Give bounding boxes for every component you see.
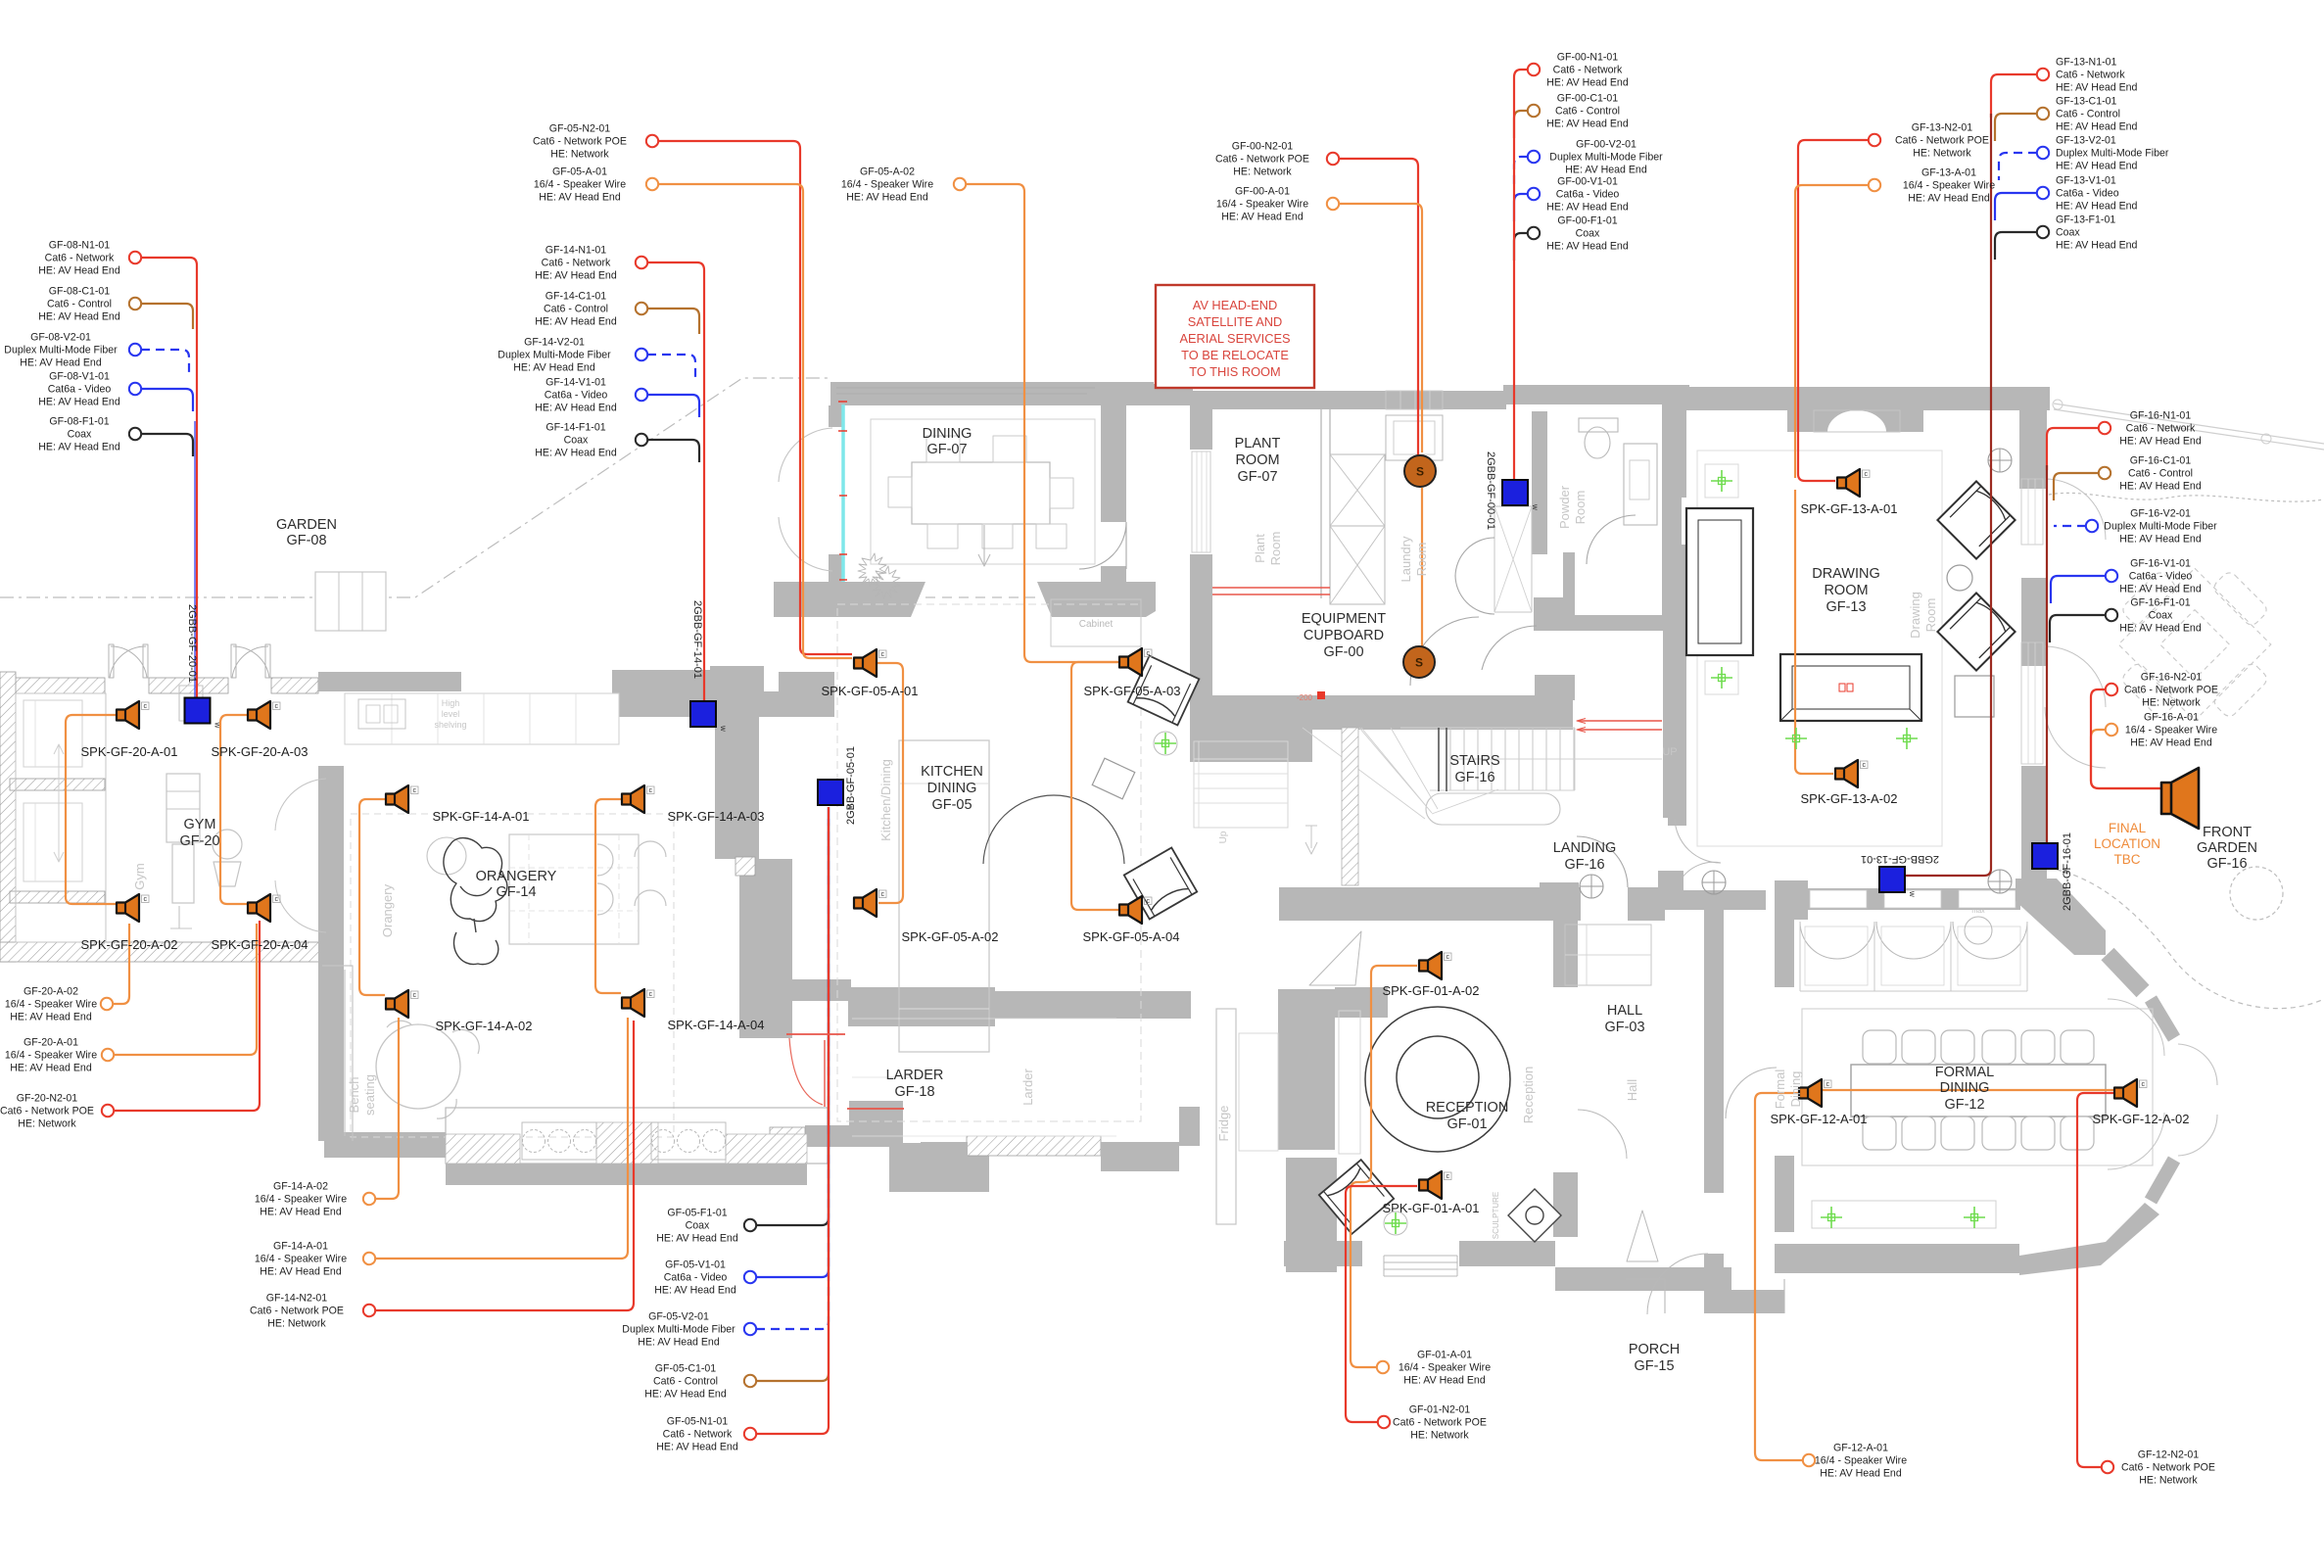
- svg-text:GF-16-V2-01: GF-16-V2-01: [2130, 507, 2191, 519]
- svg-text:SPK-GF-14-A-01: SPK-GF-14-A-01: [433, 809, 530, 824]
- svg-text:Coax: Coax: [564, 435, 589, 447]
- svg-text:GF-05-A-02: GF-05-A-02: [860, 166, 915, 177]
- svg-text:Cat6 - Network POE: Cat6 - Network POE: [0, 1106, 94, 1117]
- svg-text:PORCH: PORCH: [1629, 1342, 1680, 1357]
- svg-text:GF-14-A-02: GF-14-A-02: [273, 1180, 328, 1192]
- svg-text:Duplex Multi-Mode Fiber: Duplex Multi-Mode Fiber: [2056, 148, 2169, 160]
- svg-text:UP: UP: [1662, 746, 1677, 758]
- svg-text:Coax: Coax: [686, 1220, 710, 1232]
- svg-text:GF-14-C1-01: GF-14-C1-01: [545, 290, 607, 302]
- svg-text:GF-01-N2-01: GF-01-N2-01: [1409, 1403, 1471, 1415]
- svg-text:Plant: Plant: [1253, 534, 1267, 563]
- svg-text:Gym: Gym: [132, 863, 147, 889]
- svg-text:Duplex Multi-Mode Fiber: Duplex Multi-Mode Fiber: [498, 350, 611, 361]
- svg-text:HE: AV Head End: HE: AV Head End: [10, 1012, 92, 1023]
- svg-text:HE: AV Head End: HE: AV Head End: [2119, 481, 2202, 493]
- svg-text:GARDEN: GARDEN: [2197, 840, 2257, 856]
- svg-text:GF-14-N1-01: GF-14-N1-01: [545, 244, 607, 256]
- svg-text:GF-00: GF-00: [1323, 644, 1363, 660]
- svg-text:SATELLITE AND: SATELLITE AND: [1188, 314, 1282, 329]
- svg-text:Drawing: Drawing: [1908, 592, 1922, 639]
- svg-text:GF-01-A-01: GF-01-A-01: [1417, 1349, 1472, 1360]
- svg-text:SPK-GF-20-A-03: SPK-GF-20-A-03: [212, 744, 308, 759]
- svg-text:GF-08-V1-01: GF-08-V1-01: [49, 370, 110, 382]
- svg-text:SPK-GF-12-A-02: SPK-GF-12-A-02: [2093, 1112, 2190, 1126]
- svg-text:c: c: [413, 787, 417, 794]
- svg-text:GF-15: GF-15: [1634, 1358, 1674, 1374]
- svg-text:HE: Network: HE: Network: [1913, 148, 1971, 160]
- svg-text:DINING: DINING: [923, 426, 972, 442]
- svg-text:GF-14-N2-01: GF-14-N2-01: [266, 1292, 328, 1304]
- svg-text:HE: AV Head End: HE: AV Head End: [1908, 193, 1990, 205]
- svg-text:Cat6 - Network POE: Cat6 - Network POE: [533, 136, 627, 148]
- svg-text:Cat6a - Video: Cat6a - Video: [48, 384, 112, 396]
- svg-text:Formal: Formal: [1773, 1069, 1787, 1110]
- svg-text:LANDING: LANDING: [1553, 840, 1616, 856]
- svg-text:HE: AV Head End: HE: AV Head End: [656, 1233, 738, 1245]
- svg-text:Powder: Powder: [1557, 485, 1572, 529]
- svg-text:c: c: [144, 896, 148, 903]
- svg-text:GF-07: GF-07: [926, 442, 967, 457]
- svg-text:GF-05-A-01: GF-05-A-01: [552, 166, 607, 177]
- svg-text:GF-13-V2-01: GF-13-V2-01: [2056, 134, 2116, 146]
- svg-text:GF-16: GF-16: [1564, 857, 1604, 873]
- svg-text:Coax: Coax: [68, 429, 92, 441]
- svg-text:GF-05-F1-01: GF-05-F1-01: [667, 1207, 727, 1218]
- svg-text:Orangery: Orangery: [380, 883, 395, 937]
- svg-text:HE: AV Head End: HE: AV Head End: [2119, 436, 2202, 448]
- svg-text:HE: AV Head End: HE: AV Head End: [1546, 77, 1629, 89]
- svg-text:GF-13-N1-01: GF-13-N1-01: [2056, 56, 2117, 68]
- svg-text:seating: seating: [362, 1074, 377, 1116]
- svg-text:GF-00-N2-01: GF-00-N2-01: [1232, 140, 1294, 152]
- svg-text:HE: Network: HE: Network: [550, 149, 609, 161]
- svg-text:Cat6a - Video: Cat6a - Video: [545, 390, 608, 402]
- svg-text:2GBB-GF-16-01: 2GBB-GF-16-01: [2062, 832, 2073, 911]
- svg-text:GF-12-N2-01: GF-12-N2-01: [2138, 1449, 2200, 1460]
- svg-text:HE: AV Head End: HE: AV Head End: [654, 1285, 736, 1297]
- svg-text:Bench: Bench: [347, 1077, 361, 1114]
- svg-text:Cabinet: Cabinet: [1079, 619, 1114, 630]
- svg-text:HE: AV Head End: HE: AV Head End: [2130, 737, 2212, 749]
- svg-text:SPK-GF-05-A-04: SPK-GF-05-A-04: [1083, 929, 1180, 944]
- svg-text:Cat6 - Control: Cat6 - Control: [47, 299, 112, 310]
- svg-text:c: c: [881, 651, 885, 658]
- svg-text:c: c: [144, 703, 148, 710]
- svg-text:HE: AV Head End: HE: AV Head End: [20, 357, 102, 369]
- svg-text:Dining: Dining: [1788, 1071, 1803, 1108]
- svg-text:16/4 - Speaker Wire: 16/4 - Speaker Wire: [5, 999, 97, 1011]
- svg-text:HE: AV Head End: HE: AV Head End: [1546, 119, 1629, 130]
- svg-text:Cat6a - Video: Cat6a - Video: [2129, 571, 2193, 583]
- svg-text:Cat6 - Control: Cat6 - Control: [1555, 106, 1620, 118]
- svg-text:w: w: [1908, 890, 1917, 897]
- svg-text:GF-13-F1-01: GF-13-F1-01: [2056, 214, 2115, 225]
- svg-text:HE: AV Head End: HE: AV Head End: [1820, 1468, 1902, 1480]
- svg-text:EQUIPMENT: EQUIPMENT: [1302, 611, 1386, 627]
- svg-text:LARDER: LARDER: [886, 1068, 944, 1083]
- svg-text:-200: -200: [1297, 693, 1313, 702]
- svg-text:GF-05-V1-01: GF-05-V1-01: [665, 1259, 726, 1270]
- svg-text:HE: AV Head End: HE: AV Head End: [2119, 623, 2202, 635]
- svg-text:SPK-GF-20-A-04: SPK-GF-20-A-04: [212, 937, 308, 952]
- svg-text:GF-12: GF-12: [1944, 1097, 1984, 1113]
- svg-text:CUPBOARD: CUPBOARD: [1304, 628, 1384, 643]
- svg-text:HE: AV Head End: HE: AV Head End: [644, 1389, 727, 1401]
- svg-text:w: w: [719, 725, 728, 732]
- svg-text:HE: AV Head End: HE: AV Head End: [260, 1207, 342, 1218]
- svg-text:HE: AV Head End: HE: AV Head End: [535, 448, 617, 459]
- svg-text:GF-16-N1-01: GF-16-N1-01: [2130, 409, 2192, 421]
- svg-text:Cat6 - Network POE: Cat6 - Network POE: [1393, 1417, 1487, 1429]
- svg-text:Cat6 - Network: Cat6 - Network: [1553, 65, 1623, 76]
- svg-text:HE: AV Head End: HE: AV Head End: [656, 1442, 738, 1453]
- svg-text:GF-14-V1-01: GF-14-V1-01: [545, 376, 606, 388]
- svg-text:RECEPTION: RECEPTION: [1426, 1100, 1509, 1116]
- svg-text:GF-08-V2-01: GF-08-V2-01: [30, 331, 91, 343]
- svg-text:SPK-GF-14-A-02: SPK-GF-14-A-02: [436, 1019, 533, 1033]
- svg-text:GF-20-A-01: GF-20-A-01: [24, 1036, 78, 1048]
- svg-text:GF-05-N1-01: GF-05-N1-01: [667, 1415, 729, 1427]
- svg-text:ROOM: ROOM: [1235, 452, 1279, 468]
- svg-text:DINING: DINING: [1940, 1080, 1990, 1096]
- svg-text:Reception: Reception: [1521, 1067, 1536, 1124]
- svg-text:HE: AV Head End: HE: AV Head End: [535, 270, 617, 282]
- svg-text:GF-16-C1-01: GF-16-C1-01: [2130, 454, 2192, 466]
- svg-text:STAIRS: STAIRS: [1449, 753, 1499, 769]
- svg-text:GF-14: GF-14: [496, 884, 536, 900]
- svg-text:S: S: [1416, 465, 1424, 479]
- svg-text:16/4 - Speaker Wire: 16/4 - Speaker Wire: [841, 179, 933, 191]
- svg-text:GF-16-F1-01: GF-16-F1-01: [2130, 596, 2190, 608]
- svg-text:GF-14-F1-01: GF-14-F1-01: [545, 421, 605, 433]
- svg-text:Coax: Coax: [1576, 228, 1600, 240]
- svg-text:2GBB-GF-00-01: 2GBB-GF-00-01: [1485, 451, 1496, 530]
- svg-text:Coax: Coax: [2149, 610, 2173, 622]
- svg-text:SPK-GF-20-A-02: SPK-GF-20-A-02: [81, 937, 178, 952]
- svg-text:TO THIS ROOM: TO THIS ROOM: [1189, 364, 1280, 379]
- svg-text:SPK-GF-05-A-01: SPK-GF-05-A-01: [822, 684, 919, 698]
- svg-text:Cat6 - Network POE: Cat6 - Network POE: [250, 1306, 344, 1317]
- svg-text:c: c: [649, 787, 653, 794]
- svg-text:HE: AV Head End: HE: AV Head End: [1565, 165, 1647, 176]
- svg-text:16/4 - Speaker Wire: 16/4 - Speaker Wire: [534, 179, 626, 191]
- svg-text:Cat6 - Control: Cat6 - Control: [653, 1376, 718, 1388]
- svg-text:HALL: HALL: [1607, 1003, 1642, 1019]
- svg-text:HE: AV Head End: HE: AV Head End: [638, 1337, 720, 1349]
- svg-text:shelving: shelving: [434, 720, 466, 730]
- svg-text:GF-20: GF-20: [179, 833, 219, 849]
- svg-text:GF-05-N2-01: GF-05-N2-01: [549, 122, 611, 134]
- svg-text:S: S: [1415, 656, 1423, 670]
- svg-text:Cat6 - Network POE: Cat6 - Network POE: [2124, 685, 2218, 696]
- svg-text:Kitchen/Dining: Kitchen/Dining: [878, 759, 893, 841]
- svg-text:High: High: [442, 698, 460, 708]
- svg-text:2GBB-GF-05-01: 2GBB-GF-05-01: [845, 746, 857, 825]
- svg-text:SPK-GF-14-A-04: SPK-GF-14-A-04: [668, 1018, 765, 1032]
- svg-text:2GBB-GF-13-01: 2GBB-GF-13-01: [1861, 853, 1939, 865]
- svg-text:FINAL: FINAL: [2109, 821, 2147, 835]
- svg-text:Cat6 - Network: Cat6 - Network: [2126, 423, 2196, 435]
- svg-text:SPK-GF-12-A-01: SPK-GF-12-A-01: [1771, 1112, 1868, 1126]
- svg-text:GF-16: GF-16: [2206, 856, 2247, 872]
- svg-text:Cat6 - Control: Cat6 - Control: [2056, 109, 2120, 120]
- svg-text:Cat6 - Network: Cat6 - Network: [542, 258, 611, 269]
- svg-text:GF-13-C1-01: GF-13-C1-01: [2056, 95, 2117, 107]
- svg-text:HE: AV Head End: HE: AV Head End: [1546, 202, 1629, 214]
- svg-text:Fridge: Fridge: [1216, 1106, 1231, 1142]
- svg-text:HE: Network: HE: Network: [18, 1118, 76, 1130]
- svg-text:GF-05-C1-01: GF-05-C1-01: [655, 1362, 717, 1374]
- svg-text:16/4 - Speaker Wire: 16/4 - Speaker Wire: [255, 1254, 347, 1265]
- svg-text:Duplex Multi-Mode Fiber: Duplex Multi-Mode Fiber: [1549, 152, 1663, 164]
- svg-text:HE: AV Head End: HE: AV Head End: [2119, 584, 2202, 595]
- svg-text:16/4 - Speaker Wire: 16/4 - Speaker Wire: [1903, 180, 1995, 192]
- svg-text:DRAWING: DRAWING: [1812, 566, 1880, 582]
- svg-text:c: c: [413, 992, 417, 999]
- svg-text:GF-03: GF-03: [1604, 1020, 1644, 1035]
- svg-text:HE: AV Head End: HE: AV Head End: [38, 442, 120, 453]
- svg-text:HE: AV Head End: HE: AV Head End: [1221, 212, 1304, 223]
- svg-text:GF-05-V2-01: GF-05-V2-01: [648, 1310, 709, 1322]
- svg-text:GARDEN: GARDEN: [276, 517, 337, 533]
- svg-text:GF-08-F1-01: GF-08-F1-01: [49, 415, 109, 427]
- svg-text:GF-00-N1-01: GF-00-N1-01: [1557, 51, 1619, 63]
- svg-text:GF-14-A-01: GF-14-A-01: [273, 1240, 328, 1252]
- svg-text:level: level: [442, 709, 460, 719]
- svg-text:FORMAL: FORMAL: [1935, 1065, 1994, 1080]
- svg-text:FRONT: FRONT: [2203, 825, 2252, 840]
- svg-text:GF-20-A-02: GF-20-A-02: [24, 985, 78, 997]
- svg-text:c: c: [1863, 762, 1867, 769]
- svg-text:GF-18: GF-18: [894, 1084, 934, 1100]
- svg-text:Laundry: Laundry: [1399, 536, 1413, 582]
- svg-text:Duplex Multi-Mode Fiber: Duplex Multi-Mode Fiber: [622, 1324, 735, 1336]
- svg-text:c: c: [1147, 650, 1151, 657]
- svg-text:c: c: [275, 703, 279, 710]
- svg-text:16/4 - Speaker Wire: 16/4 - Speaker Wire: [255, 1194, 347, 1206]
- svg-text:max: max: [1971, 908, 1985, 915]
- svg-text:SPK-GF-01-A-01: SPK-GF-01-A-01: [1383, 1201, 1480, 1215]
- svg-text:HE: AV Head End: HE: AV Head End: [535, 316, 617, 328]
- svg-text:Cat6 - Network: Cat6 - Network: [663, 1429, 733, 1441]
- svg-text:c: c: [1865, 471, 1869, 478]
- svg-text:DINING: DINING: [927, 781, 977, 796]
- svg-text:Cat6a - Video: Cat6a - Video: [664, 1272, 728, 1284]
- svg-text:Cat6 - Control: Cat6 - Control: [2128, 468, 2193, 480]
- svg-text:GF-13-N2-01: GF-13-N2-01: [1912, 121, 1973, 133]
- svg-text:SPK-GF-05-A-02: SPK-GF-05-A-02: [902, 929, 999, 944]
- svg-text:HE: Network: HE: Network: [2142, 697, 2201, 709]
- svg-text:GF-20-N2-01: GF-20-N2-01: [17, 1092, 78, 1104]
- svg-text:Cat6 - Network POE: Cat6 - Network POE: [1895, 135, 1989, 147]
- svg-text:HE: AV Head End: HE: AV Head End: [38, 311, 120, 323]
- svg-text:HE: Network: HE: Network: [267, 1318, 326, 1330]
- svg-text:16/4 - Speaker Wire: 16/4 - Speaker Wire: [2125, 725, 2217, 736]
- svg-text:GF-00-V1-01: GF-00-V1-01: [1557, 175, 1618, 187]
- svg-text:HE: AV Head End: HE: AV Head End: [38, 397, 120, 408]
- svg-text:GF-13-A-01: GF-13-A-01: [1921, 166, 1976, 178]
- svg-text:HE: AV Head End: HE: AV Head End: [535, 403, 617, 414]
- svg-text:GF-01: GF-01: [1447, 1117, 1487, 1132]
- svg-text:GF-16: GF-16: [1454, 770, 1494, 785]
- svg-text:GF-08: GF-08: [286, 533, 326, 548]
- svg-text:HE: Network: HE: Network: [2139, 1475, 2198, 1487]
- svg-text:Duplex Multi-Mode Fiber: Duplex Multi-Mode Fiber: [4, 345, 118, 356]
- svg-text:HE: AV Head End: HE: AV Head End: [2119, 534, 2202, 546]
- svg-text:HE: AV Head End: HE: AV Head End: [2056, 161, 2138, 172]
- svg-text:GF-12-A-01: GF-12-A-01: [1833, 1442, 1888, 1453]
- svg-text:HE: AV Head End: HE: AV Head End: [2056, 82, 2138, 94]
- svg-text:GF-00-V2-01: GF-00-V2-01: [1576, 138, 1636, 150]
- svg-text:c: c: [881, 891, 885, 898]
- svg-text:Room: Room: [1268, 532, 1283, 566]
- svg-text:HE: AV Head End: HE: AV Head End: [846, 192, 928, 204]
- svg-text:GF-16-N2-01: GF-16-N2-01: [2141, 671, 2203, 683]
- svg-text:c: c: [1826, 1081, 1830, 1088]
- svg-text:SPK-GF-05-A-03: SPK-GF-05-A-03: [1084, 684, 1181, 698]
- svg-text:ROOM: ROOM: [1824, 583, 1868, 598]
- svg-text:SPK-GF-14-A-03: SPK-GF-14-A-03: [668, 809, 765, 824]
- svg-text:Cat6a - Video: Cat6a - Video: [2056, 188, 2119, 200]
- svg-text:Cat6 - Network: Cat6 - Network: [2056, 70, 2125, 81]
- svg-text:HE: Network: HE: Network: [1410, 1430, 1469, 1442]
- svg-text:GF-08-N1-01: GF-08-N1-01: [49, 239, 111, 251]
- svg-text:Room: Room: [1573, 491, 1588, 525]
- svg-text:w: w: [1531, 503, 1540, 510]
- svg-text:AERIAL SERVICES: AERIAL SERVICES: [1179, 331, 1290, 346]
- svg-text:Room: Room: [1923, 598, 1938, 633]
- svg-text:16/4 - Speaker Wire: 16/4 - Speaker Wire: [5, 1050, 97, 1062]
- svg-text:GYM: GYM: [183, 817, 215, 832]
- svg-text:c: c: [2142, 1081, 2146, 1088]
- svg-text:SCULPTURE: SCULPTURE: [1492, 1192, 1500, 1239]
- svg-text:HE: AV Head End: HE: AV Head End: [2056, 201, 2138, 213]
- svg-text:c: c: [1447, 1173, 1450, 1180]
- svg-text:HE: AV Head End: HE: AV Head End: [1546, 241, 1629, 253]
- svg-text:Larder: Larder: [1020, 1069, 1035, 1106]
- svg-text:Duplex Multi-Mode Fiber: Duplex Multi-Mode Fiber: [2104, 521, 2217, 533]
- svg-text:Coax: Coax: [2056, 227, 2080, 239]
- svg-text:GF-14-V2-01: GF-14-V2-01: [524, 336, 585, 348]
- svg-text:HE: Network: HE: Network: [1233, 166, 1292, 178]
- svg-text:SPK-GF-01-A-02: SPK-GF-01-A-02: [1383, 983, 1480, 998]
- svg-text:GF-13: GF-13: [1826, 599, 1866, 615]
- svg-text:c: c: [1147, 898, 1151, 905]
- svg-text:ORANGERY: ORANGERY: [476, 869, 557, 884]
- svg-text:Cat6 - Network POE: Cat6 - Network POE: [1215, 154, 1309, 166]
- svg-text:SPK-GF-13-A-02: SPK-GF-13-A-02: [1801, 791, 1898, 806]
- svg-text:SPK-GF-20-A-01: SPK-GF-20-A-01: [81, 744, 178, 759]
- svg-text:w: w: [213, 722, 222, 729]
- svg-text:HE: AV Head End: HE: AV Head End: [10, 1063, 92, 1074]
- svg-text:16/4 - Speaker Wire: 16/4 - Speaker Wire: [1216, 199, 1308, 211]
- svg-text:TO BE RELOCATE: TO BE RELOCATE: [1181, 348, 1289, 362]
- svg-text:GF-07: GF-07: [1237, 469, 1277, 485]
- svg-text:GF-13-V1-01: GF-13-V1-01: [2056, 174, 2116, 186]
- svg-text:GF-00-A-01: GF-00-A-01: [1235, 185, 1290, 197]
- svg-text:c: c: [275, 896, 279, 903]
- svg-text:GF-00-C1-01: GF-00-C1-01: [1557, 92, 1619, 104]
- svg-text:c: c: [1447, 954, 1450, 961]
- svg-text:16/4 - Speaker Wire: 16/4 - Speaker Wire: [1815, 1455, 1907, 1467]
- svg-text:Cat6 - Network POE: Cat6 - Network POE: [2121, 1462, 2215, 1474]
- svg-text:Cat6a - Video: Cat6a - Video: [1556, 189, 1620, 201]
- svg-text:AV HEAD-END: AV HEAD-END: [1193, 298, 1278, 312]
- svg-text:HE: AV Head End: HE: AV Head End: [260, 1266, 342, 1278]
- svg-text:c: c: [649, 991, 653, 998]
- svg-text:TBC: TBC: [2114, 852, 2141, 867]
- svg-text:2GBB-GF-20-01: 2GBB-GF-20-01: [186, 604, 198, 683]
- svg-text:KITCHEN: KITCHEN: [921, 764, 983, 780]
- svg-text:HE: AV Head End: HE: AV Head End: [2056, 240, 2138, 252]
- svg-text:Cat6 - Control: Cat6 - Control: [544, 304, 608, 315]
- svg-text:Cat6 - Network: Cat6 - Network: [45, 253, 115, 264]
- svg-text:GF-08-C1-01: GF-08-C1-01: [49, 285, 111, 297]
- svg-text:SPK-GF-13-A-01: SPK-GF-13-A-01: [1801, 501, 1898, 516]
- svg-text:HE: AV Head End: HE: AV Head End: [38, 265, 120, 277]
- svg-text:Up: Up: [1218, 831, 1229, 843]
- svg-text:HE: AV Head End: HE: AV Head End: [1403, 1375, 1486, 1387]
- svg-text:LOCATION: LOCATION: [2094, 836, 2160, 851]
- svg-text:16/4 - Speaker Wire: 16/4 - Speaker Wire: [1399, 1362, 1491, 1374]
- svg-text:GF-05: GF-05: [931, 797, 972, 813]
- svg-text:Hall: Hall: [1625, 1079, 1639, 1102]
- svg-text:PLANT: PLANT: [1235, 436, 1281, 451]
- svg-text:HE: AV Head End: HE: AV Head End: [513, 362, 595, 374]
- svg-text:2GBB-GF-14-01: 2GBB-GF-14-01: [691, 600, 703, 679]
- svg-text:GF-00-F1-01: GF-00-F1-01: [1557, 214, 1617, 226]
- svg-text:HE: AV Head End: HE: AV Head End: [539, 192, 621, 204]
- svg-text:GF-16-V1-01: GF-16-V1-01: [2130, 557, 2191, 569]
- svg-text:GF-16-A-01: GF-16-A-01: [2144, 711, 2199, 723]
- svg-text:Room: Room: [1414, 543, 1429, 577]
- svg-text:HE: AV Head End: HE: AV Head End: [2056, 121, 2138, 133]
